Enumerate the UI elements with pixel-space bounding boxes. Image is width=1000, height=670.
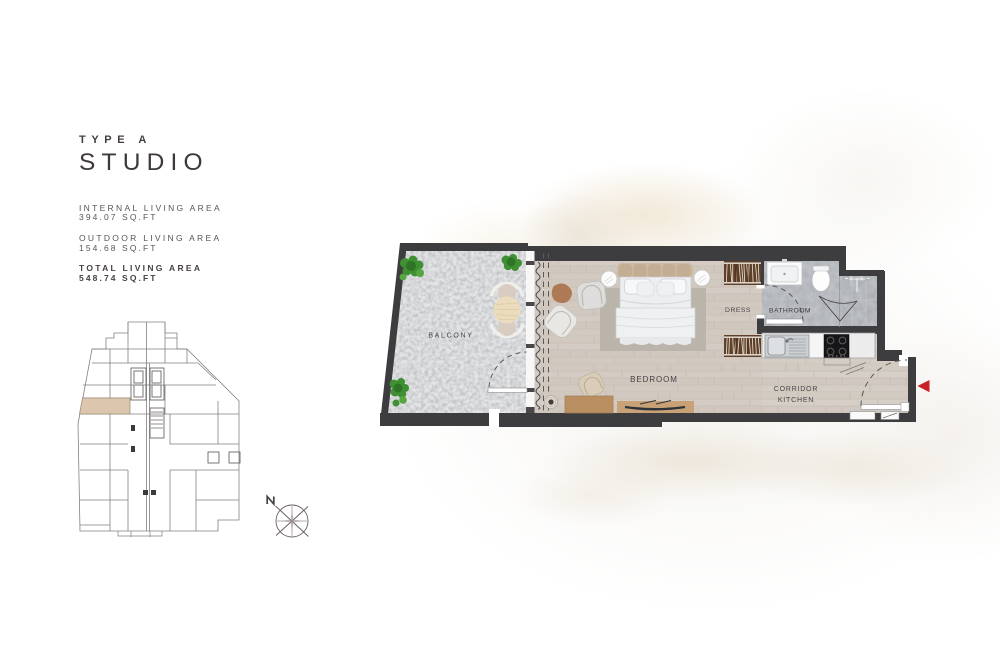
svg-text:DRESS: DRESS	[725, 307, 751, 314]
svg-text:BEDROOM: BEDROOM	[630, 375, 678, 384]
svg-text:KITCHEN: KITCHEN	[778, 397, 814, 404]
svg-text:CORRIDOR: CORRIDOR	[774, 386, 819, 393]
svg-text:BALCONY: BALCONY	[428, 333, 473, 340]
svg-text:BATHROOM: BATHROOM	[769, 308, 811, 315]
